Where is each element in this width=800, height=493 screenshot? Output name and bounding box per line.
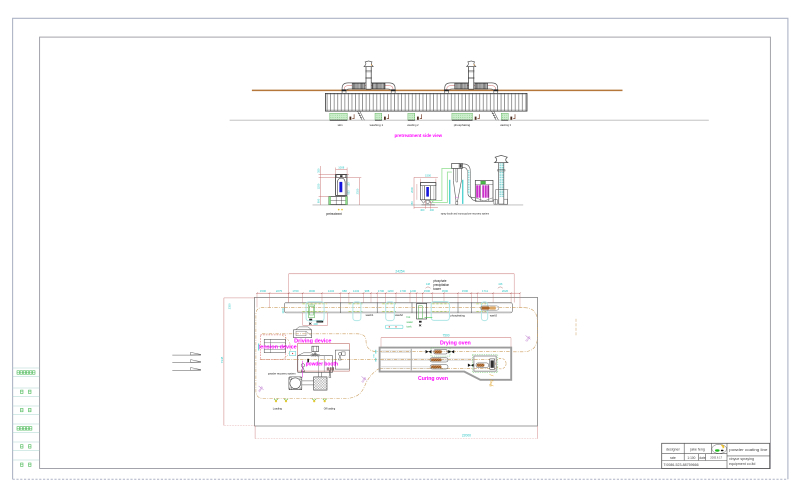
svg-text:skin: skin [338,123,343,127]
svg-text:tank: tank [407,325,413,329]
svg-text:tower: tower [433,287,442,291]
svg-text:1250: 1250 [316,183,320,189]
svg-text:400: 400 [313,322,318,326]
svg-text:448: 448 [426,283,431,286]
svg-text:phosphating: phosphating [450,313,465,317]
svg-text:150: 150 [347,182,350,187]
svg-text:4500: 4500 [442,289,449,293]
svg-text:xinyue spraying: xinyue spraying [729,457,754,461]
svg-text:24254: 24254 [395,270,404,274]
svg-text:22000: 22000 [462,433,471,437]
svg-text:jake feng: jake feng [689,447,705,451]
svg-text:Curing oven: Curing oven [418,376,448,382]
svg-text:850: 850 [347,190,350,195]
svg-text:988: 988 [342,289,347,293]
svg-text:powder recovery system: powder recovery system [268,372,296,376]
svg-text:2026: 2026 [502,289,509,293]
svg-text:7500: 7500 [442,334,449,338]
svg-text:rate: rate [670,456,676,460]
svg-text:washing 3: washing 3 [500,123,511,127]
svg-text:1200: 1200 [387,289,394,293]
svg-text:1:100: 1:100 [687,456,695,460]
svg-text:equipment co.ltd: equipment co.ltd [729,462,755,466]
svg-text:2350: 2350 [227,303,231,309]
svg-text:Loading: Loading [273,407,282,411]
svg-text:water: water [407,320,414,324]
svg-text:1711: 1711 [482,289,488,293]
svg-text:400: 400 [430,209,435,212]
svg-text:1500: 1500 [425,173,431,177]
svg-text:1434: 1434 [328,289,335,293]
svg-text:wash1: wash1 [366,313,374,317]
svg-text:1500: 1500 [424,289,431,293]
svg-text:Drying oven: Drying oven [440,340,471,346]
svg-text:tension device: tension device [258,345,296,351]
svg-text:1500: 1500 [260,289,267,293]
svg-text:1700: 1700 [292,289,299,293]
svg-text:pretreatment: pretreatment [326,212,342,216]
svg-text:988: 988 [365,289,370,293]
svg-text:1500: 1500 [462,289,469,293]
svg-text:Off loading: Off loading [324,407,336,411]
svg-text:Driving device: Driving device [294,338,331,344]
svg-text:spray booth and monocyclone re: spray booth and monocyclone recovery sys… [441,212,490,216]
svg-text:2350: 2350 [355,188,359,194]
svg-text:250: 250 [411,201,414,206]
svg-text:2275: 2275 [276,289,283,293]
svg-text:2000: 2000 [410,187,414,193]
svg-text:1000: 1000 [282,307,285,313]
svg-text:1200: 1200 [410,289,417,293]
svg-text:2005.6.17: 2005.6.17 [710,456,722,460]
svg-text:400: 400 [420,209,425,212]
svg-text:448: 448 [498,283,503,286]
svg-text:washing 1: washing 1 [370,123,384,127]
svg-text:1700: 1700 [378,289,385,293]
svg-text:pretreatment side view: pretreatment side view [395,133,443,138]
svg-text:600: 600 [316,198,320,203]
svg-text:3000: 3000 [309,289,316,293]
svg-text:powder booth: powder booth [306,362,338,368]
svg-text:hot: hot [407,315,411,319]
svg-text:wash2: wash2 [395,313,403,317]
svg-text:wash3: wash3 [490,313,497,317]
svg-text:350: 350 [316,168,320,173]
svg-text:powder coating line: powder coating line [729,448,767,452]
svg-text:7348: 7348 [220,356,224,363]
svg-text:T:0086-523-88759666: T:0086-523-88759666 [664,463,699,467]
svg-text:phosphating: phosphating [454,123,471,127]
svg-text:designer: designer [666,447,681,451]
svg-text:1008: 1008 [338,165,344,169]
svg-text:1443: 1443 [353,289,360,293]
svg-text:washing 2: washing 2 [407,123,419,127]
svg-text:1700: 1700 [400,289,407,293]
svg-text:date: date [699,456,705,460]
